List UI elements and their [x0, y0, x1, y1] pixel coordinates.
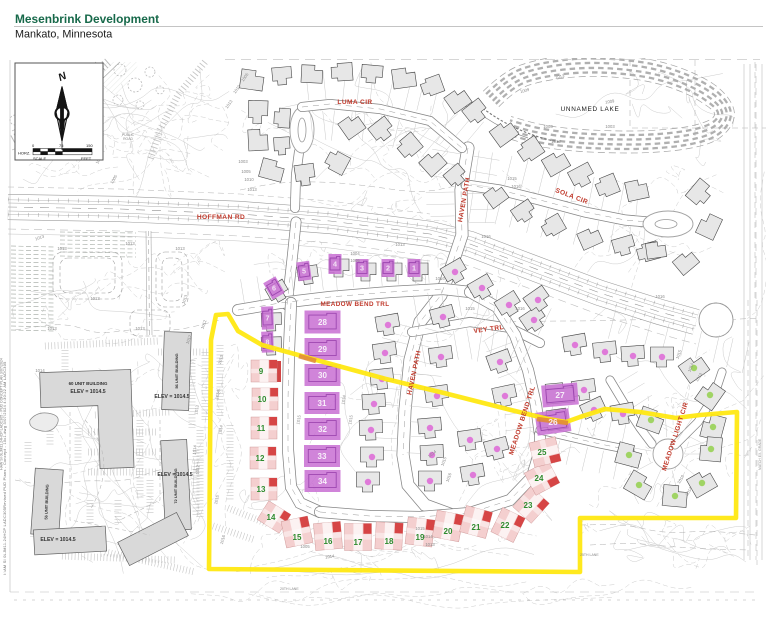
- svg-text:1013: 1013: [175, 246, 185, 251]
- svg-text:SCALE: SCALE: [33, 156, 46, 161]
- svg-text:75: 75: [59, 143, 64, 148]
- svg-text:1004: 1004: [350, 251, 360, 256]
- svg-text:1005: 1005: [241, 169, 251, 174]
- svg-text:17: 17: [354, 538, 363, 547]
- svg-text:1016: 1016: [435, 276, 445, 281]
- svg-text:2: 2: [386, 264, 390, 273]
- svg-text:10: 10: [258, 395, 267, 404]
- svg-text:HORZ.: HORZ.: [18, 151, 30, 156]
- svg-text:27: 27: [555, 390, 565, 400]
- svg-text:20TH LANE: 20TH LANE: [280, 587, 299, 591]
- svg-text:ELEV = 1014.5: ELEV = 1014.5: [70, 389, 105, 395]
- svg-text:25: 25: [538, 448, 547, 457]
- svg-text:24: 24: [535, 474, 544, 483]
- svg-text:I:\AM SI 0LJM11.24HCP LADC305R: I:\AM SI 0LJM11.24HCP LADC305Revised PUD…: [3, 361, 7, 575]
- svg-text:1005: 1005: [300, 544, 310, 549]
- svg-text:1013: 1013: [135, 326, 145, 331]
- svg-text:60 UNIT BUILDING: 60 UNIT BUILDING: [69, 381, 108, 386]
- svg-text:1003: 1003: [605, 124, 615, 129]
- svg-text:1013: 1013: [395, 242, 405, 247]
- svg-text:30: 30: [318, 371, 327, 380]
- svg-text:LUMA CIR: LUMA CIR: [337, 99, 372, 106]
- svg-text:1015: 1015: [465, 306, 475, 311]
- svg-text:1003: 1003: [543, 124, 553, 129]
- svg-text:1013: 1013: [47, 326, 57, 331]
- svg-text:25TH LANE: 25TH LANE: [580, 553, 599, 557]
- svg-text:5: 5: [302, 267, 306, 276]
- svg-text:33: 33: [318, 452, 327, 461]
- svg-text:1005: 1005: [350, 258, 360, 263]
- svg-text:1015: 1015: [415, 526, 425, 531]
- svg-text:16: 16: [324, 537, 333, 546]
- svg-text:ELEV = 1014.5: ELEV = 1014.5: [154, 394, 189, 400]
- svg-text:Mesenbrink Development: Mesenbrink Development: [15, 12, 159, 26]
- svg-text:1003: 1003: [238, 159, 248, 164]
- svg-text:1013: 1013: [125, 241, 135, 246]
- svg-text:18: 18: [385, 537, 394, 546]
- svg-text:Mankato, Minnesota: Mankato, Minnesota: [15, 29, 112, 41]
- svg-text:1016: 1016: [655, 294, 665, 299]
- svg-text:ELEV = 1014.5: ELEV = 1014.5: [40, 537, 75, 543]
- svg-text:26: 26: [548, 417, 558, 427]
- svg-text:12: 12: [256, 454, 265, 463]
- svg-text:1013: 1013: [425, 542, 435, 547]
- svg-text:1: 1: [412, 264, 416, 273]
- svg-text:150: 150: [86, 143, 93, 148]
- svg-text:1012: 1012: [195, 464, 201, 474]
- svg-text:MEADOW BEND TRL: MEADOW BEND TRL: [321, 301, 390, 308]
- svg-text:1016: 1016: [481, 234, 491, 239]
- svg-text:1013: 1013: [90, 296, 100, 301]
- svg-text:32: 32: [318, 425, 327, 434]
- svg-text:ELEV = 1014.5: ELEV = 1014.5: [157, 472, 192, 478]
- svg-text:UNNAMED LAKE: UNNAMED LAKE: [561, 106, 620, 113]
- svg-text:MATCH EX. GRADE: MATCH EX. GRADE: [758, 438, 762, 470]
- svg-text:31: 31: [318, 399, 327, 408]
- svg-text:11: 11: [257, 424, 266, 433]
- svg-text:6: 6: [272, 284, 276, 293]
- svg-text:14: 14: [267, 513, 276, 522]
- svg-text:23: 23: [524, 501, 533, 510]
- svg-text:1013: 1013: [57, 246, 67, 251]
- svg-text:1010: 1010: [244, 177, 254, 182]
- svg-text:21: 21: [472, 523, 481, 532]
- svg-text:1016: 1016: [511, 184, 521, 189]
- svg-text:20: 20: [444, 527, 453, 536]
- svg-text:1016: 1016: [515, 306, 525, 311]
- svg-text:13: 13: [257, 485, 266, 494]
- svg-text:HOFFMAN RD: HOFFMAN RD: [197, 214, 245, 221]
- svg-text:15: 15: [293, 533, 302, 542]
- svg-text:29: 29: [318, 345, 327, 354]
- svg-text:FEET: FEET: [81, 156, 92, 161]
- svg-text:7: 7: [266, 314, 270, 323]
- svg-text:22: 22: [501, 521, 510, 530]
- svg-text:ROAD: ROAD: [123, 137, 133, 141]
- svg-text:34: 34: [318, 477, 327, 486]
- svg-text:1014: 1014: [192, 444, 198, 454]
- svg-text:28: 28: [318, 318, 327, 327]
- svg-text:1013: 1013: [247, 187, 257, 192]
- svg-text:56 UNIT BUILDING: 56 UNIT BUILDING: [174, 353, 179, 388]
- svg-text:1015: 1015: [507, 176, 517, 181]
- svg-text:HAW SI 0LJM11.24HCP LADC305 -: HAW SI 0LJM11.24HCP LADC305 - PUD CONCEP…: [0, 358, 4, 470]
- svg-text:1014: 1014: [423, 534, 433, 539]
- svg-text:1013: 1013: [551, 139, 561, 144]
- svg-text:9: 9: [259, 367, 264, 376]
- svg-text:4: 4: [333, 260, 337, 269]
- svg-text:3: 3: [360, 264, 364, 273]
- svg-text:1014: 1014: [35, 368, 45, 373]
